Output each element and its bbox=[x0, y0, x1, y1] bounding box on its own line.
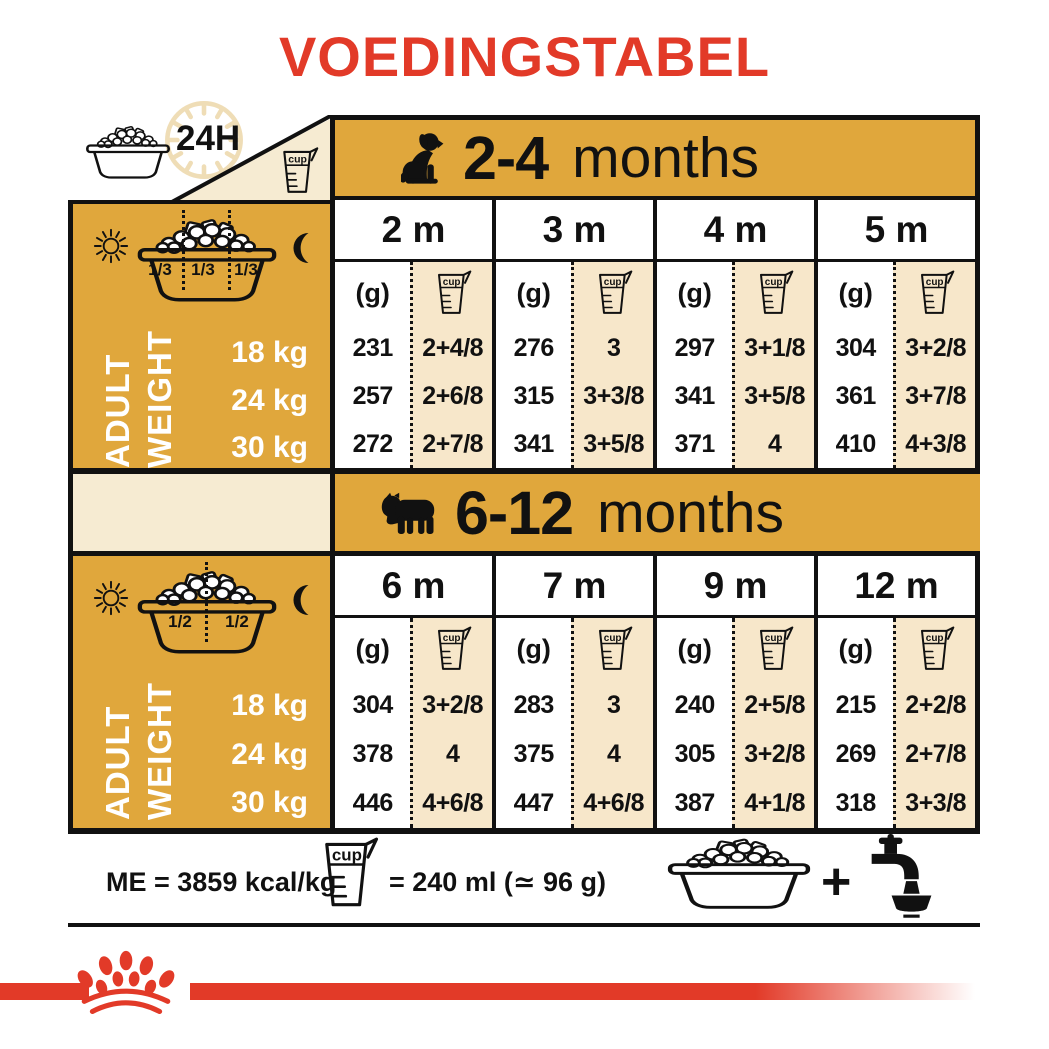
grams-subcolumn: (g) 231 257 272 bbox=[335, 262, 410, 468]
portion-bowl: 1/3 1/3 1/3 bbox=[131, 208, 283, 310]
grams-value: 283 bbox=[496, 681, 571, 730]
cup-value: 4+1/8 bbox=[735, 779, 814, 828]
grams-value: 272 bbox=[335, 420, 410, 468]
sun-icon bbox=[89, 576, 133, 620]
cups-subcolumn: cup 2+5/8 3+2/8 4+1/8 bbox=[732, 618, 814, 828]
cup-value: 2+5/8 bbox=[735, 681, 814, 730]
weight-row-label: 30 kg bbox=[188, 786, 308, 820]
month-header: 6 m bbox=[335, 556, 492, 618]
grams-unit: (g) bbox=[818, 618, 893, 681]
puppy-silhouette-icon bbox=[401, 130, 445, 186]
bulldog-silhouette-icon bbox=[381, 489, 437, 537]
metabolic-energy-label: ME = 3859 kcal/kg bbox=[106, 867, 336, 898]
sidebar-puppy: 1/3 1/3 1/3 ADULT WEIGHT 18 kg 24 kg 30 … bbox=[68, 200, 330, 468]
grams-unit: (g) bbox=[335, 262, 410, 325]
cup-value: 4 bbox=[413, 730, 492, 779]
grams-value: 318 bbox=[818, 779, 893, 828]
moon-icon bbox=[285, 580, 315, 620]
weight-row-label: 18 kg bbox=[188, 336, 308, 370]
weight-row-label: 30 kg bbox=[188, 431, 308, 465]
month-header: 5 m bbox=[818, 200, 975, 262]
cup-subheader: cup bbox=[574, 262, 653, 325]
cup-subheader: cup bbox=[896, 618, 975, 681]
cup-equivalence-label: = 240 ml (≃ 96 g) bbox=[389, 867, 606, 898]
cup-subheader: cup bbox=[896, 262, 975, 325]
cup-value: 3+1/8 bbox=[735, 325, 814, 373]
cup-subheader: cup bbox=[413, 262, 492, 325]
measuring-cup-icon: cup bbox=[594, 270, 634, 317]
age-column: 4 m (g) 297 341 371 cup bbox=[653, 200, 814, 468]
cups-subcolumn: cup 3 4 4+6/8 bbox=[571, 618, 653, 828]
svg-text:cup: cup bbox=[332, 845, 362, 864]
svg-text:cup: cup bbox=[288, 153, 307, 165]
cup-subheader: cup bbox=[413, 618, 492, 681]
grams-value: 446 bbox=[335, 779, 410, 828]
separator-band: 6-12 months bbox=[68, 468, 980, 556]
columns-adult: 6 m (g) 304 378 446 cup bbox=[330, 556, 980, 828]
svg-text:cup: cup bbox=[925, 277, 943, 288]
grams-unit: (g) bbox=[657, 262, 732, 325]
kibble-bowl-icon bbox=[661, 836, 817, 916]
cup-value: 3+7/8 bbox=[896, 373, 975, 421]
age-column: 6 m (g) 304 378 446 cup bbox=[335, 556, 492, 828]
moon-icon bbox=[285, 228, 315, 268]
cup-value: 3+5/8 bbox=[574, 420, 653, 468]
sun-icon bbox=[89, 224, 133, 268]
cup-value: 4+3/8 bbox=[896, 420, 975, 468]
cup-value: 3+5/8 bbox=[735, 373, 814, 421]
age-column: 12 m (g) 215 269 318 cup bbox=[814, 556, 975, 828]
grams-subcolumn: (g) 240 305 387 bbox=[657, 618, 732, 828]
feeding-table-page: VOEDINGSTABEL 24H cup bbox=[0, 0, 1049, 1049]
svg-text:cup: cup bbox=[764, 277, 782, 288]
separator-cell bbox=[68, 474, 330, 551]
grams-value: 269 bbox=[818, 730, 893, 779]
month-header: 7 m bbox=[496, 556, 653, 618]
grams-value: 378 bbox=[335, 730, 410, 779]
age-range: 6-12 bbox=[455, 478, 573, 548]
grams-subcolumn: (g) 304 361 410 bbox=[818, 262, 893, 468]
cup-value: 4+6/8 bbox=[574, 779, 653, 828]
measuring-cup-icon: cup bbox=[755, 270, 795, 317]
grams-value: 375 bbox=[496, 730, 571, 779]
portion-divider bbox=[205, 562, 208, 642]
legend-row: ME = 3859 kcal/kg cup = 240 ml (≃ 96 g) … bbox=[68, 828, 980, 927]
portion-fraction: 1/2 bbox=[217, 612, 257, 632]
age-suffix: months bbox=[572, 125, 759, 191]
grams-value: 231 bbox=[335, 325, 410, 373]
cup-value: 3+2/8 bbox=[735, 730, 814, 779]
grams-value: 276 bbox=[496, 325, 571, 373]
grams-value: 410 bbox=[818, 420, 893, 468]
water-tap-icon bbox=[858, 834, 936, 920]
svg-text:cup: cup bbox=[603, 277, 621, 288]
brand-stripe-fade bbox=[190, 983, 975, 1000]
grams-subcolumn: (g) 283 375 447 bbox=[496, 618, 571, 828]
cup-value: 2+7/8 bbox=[896, 730, 975, 779]
age-column: 9 m (g) 240 305 387 cup bbox=[653, 556, 814, 828]
cups-subcolumn: cup 2+4/8 2+6/8 2+7/8 bbox=[410, 262, 492, 468]
measuring-cup-icon: cup bbox=[278, 147, 320, 196]
grams-value: 361 bbox=[818, 373, 893, 421]
age-column: 5 m (g) 304 361 410 cup bbox=[814, 200, 975, 468]
cup-value: 3+2/8 bbox=[413, 681, 492, 730]
age-suffix: months bbox=[597, 480, 784, 546]
cup-value: 2+7/8 bbox=[413, 420, 492, 468]
grams-value: 371 bbox=[657, 420, 732, 468]
portion-fraction: 1/3 bbox=[226, 260, 266, 280]
grams-subcolumn: (g) 297 341 371 bbox=[657, 262, 732, 468]
portion-fraction: 1/3 bbox=[140, 260, 180, 280]
cups-subcolumn: cup 3 3+3/8 3+5/8 bbox=[571, 262, 653, 468]
month-header: 4 m bbox=[657, 200, 814, 262]
cup-value: 2+2/8 bbox=[896, 681, 975, 730]
cup-value: 4 bbox=[735, 420, 814, 468]
month-header: 12 m bbox=[818, 556, 975, 618]
measuring-cup-icon: cup bbox=[317, 837, 381, 911]
weight-row-label: 18 kg bbox=[188, 689, 308, 723]
cup-value: 4+6/8 bbox=[413, 779, 492, 828]
measuring-cup-icon: cup bbox=[594, 626, 634, 673]
sidebar-adult: 1/2 1/2 ADULT WEIGHT 18 kg 24 kg 30 kg bbox=[68, 556, 330, 828]
cups-subcolumn: cup 2+2/8 2+7/8 3+3/8 bbox=[893, 618, 975, 828]
cup-subheader: cup bbox=[735, 618, 814, 681]
weight-row-label: 24 kg bbox=[188, 384, 308, 418]
grams-value: 387 bbox=[657, 779, 732, 828]
portion-fraction: 1/3 bbox=[183, 260, 223, 280]
cups-subcolumn: cup 3+1/8 3+5/8 4 bbox=[732, 262, 814, 468]
cup-value: 3 bbox=[574, 325, 653, 373]
cup-value: 2+6/8 bbox=[413, 373, 492, 421]
feeding-table: cup 2-4 months bbox=[68, 115, 980, 828]
page-title: VOEDINGSTABEL bbox=[0, 24, 1049, 89]
weight-row-label: 24 kg bbox=[188, 738, 308, 772]
grams-value: 447 bbox=[496, 779, 571, 828]
age-column: 7 m (g) 283 375 447 cup bbox=[492, 556, 653, 828]
svg-text:cup: cup bbox=[603, 633, 621, 644]
grams-unit: (g) bbox=[818, 262, 893, 325]
svg-text:cup: cup bbox=[442, 277, 460, 288]
grams-value: 257 bbox=[335, 373, 410, 421]
svg-text:cup: cup bbox=[925, 633, 943, 644]
cup-value: 3+3/8 bbox=[896, 779, 975, 828]
cup-subheader: cup bbox=[574, 618, 653, 681]
grams-unit: (g) bbox=[657, 618, 732, 681]
cup-value: 3+2/8 bbox=[896, 325, 975, 373]
measuring-cup-icon: cup bbox=[433, 626, 473, 673]
plus-sign: + bbox=[821, 852, 851, 912]
cup-value: 4 bbox=[574, 730, 653, 779]
portion-fraction: 1/2 bbox=[160, 612, 200, 632]
grams-value: 304 bbox=[335, 681, 410, 730]
grams-value: 240 bbox=[657, 681, 732, 730]
svg-text:cup: cup bbox=[764, 633, 782, 644]
cup-subheader: cup bbox=[735, 262, 814, 325]
portion-bowl: 1/2 1/2 bbox=[131, 560, 283, 662]
measuring-cup-icon: cup bbox=[916, 270, 956, 317]
age-band-adult: 6-12 months bbox=[330, 474, 980, 551]
grams-value: 341 bbox=[496, 420, 571, 468]
grams-value: 297 bbox=[657, 325, 732, 373]
grams-value: 341 bbox=[657, 373, 732, 421]
age-range: 2-4 bbox=[463, 123, 548, 193]
grams-subcolumn: (g) 304 378 446 bbox=[335, 618, 410, 828]
measuring-cup-icon: cup bbox=[433, 270, 473, 317]
measuring-cup-icon: cup bbox=[916, 626, 956, 673]
adult-weight-label: ADULT WEIGHT bbox=[97, 680, 181, 820]
svg-text:cup: cup bbox=[442, 633, 460, 644]
grams-value: 215 bbox=[818, 681, 893, 730]
measuring-cup-icon: cup bbox=[755, 626, 795, 673]
age-column: 2 m (g) 231 257 272 cup bbox=[335, 200, 492, 468]
royal-canin-crown-logo bbox=[70, 948, 182, 1018]
grams-subcolumn: (g) 276 315 341 bbox=[496, 262, 571, 468]
grams-value: 315 bbox=[496, 373, 571, 421]
month-header: 3 m bbox=[496, 200, 653, 262]
grams-value: 304 bbox=[818, 325, 893, 373]
age-column: 3 m (g) 276 315 341 cup bbox=[492, 200, 653, 468]
cups-subcolumn: cup 3+2/8 3+7/8 4+3/8 bbox=[893, 262, 975, 468]
grams-unit: (g) bbox=[496, 618, 571, 681]
grams-value: 305 bbox=[657, 730, 732, 779]
grams-unit: (g) bbox=[335, 618, 410, 681]
month-header: 9 m bbox=[657, 556, 814, 618]
cup-value: 3+3/8 bbox=[574, 373, 653, 421]
adult-weight-label: ADULT WEIGHT bbox=[97, 328, 181, 468]
columns-puppy: 2 m (g) 231 257 272 cup bbox=[330, 200, 980, 468]
cups-subcolumn: cup 3+2/8 4 4+6/8 bbox=[410, 618, 492, 828]
month-header: 2 m bbox=[335, 200, 492, 262]
cup-value: 3 bbox=[574, 681, 653, 730]
grams-unit: (g) bbox=[496, 262, 571, 325]
grams-subcolumn: (g) 215 269 318 bbox=[818, 618, 893, 828]
cup-value: 2+4/8 bbox=[413, 325, 492, 373]
age-band-puppy: 2-4 months bbox=[330, 115, 980, 200]
